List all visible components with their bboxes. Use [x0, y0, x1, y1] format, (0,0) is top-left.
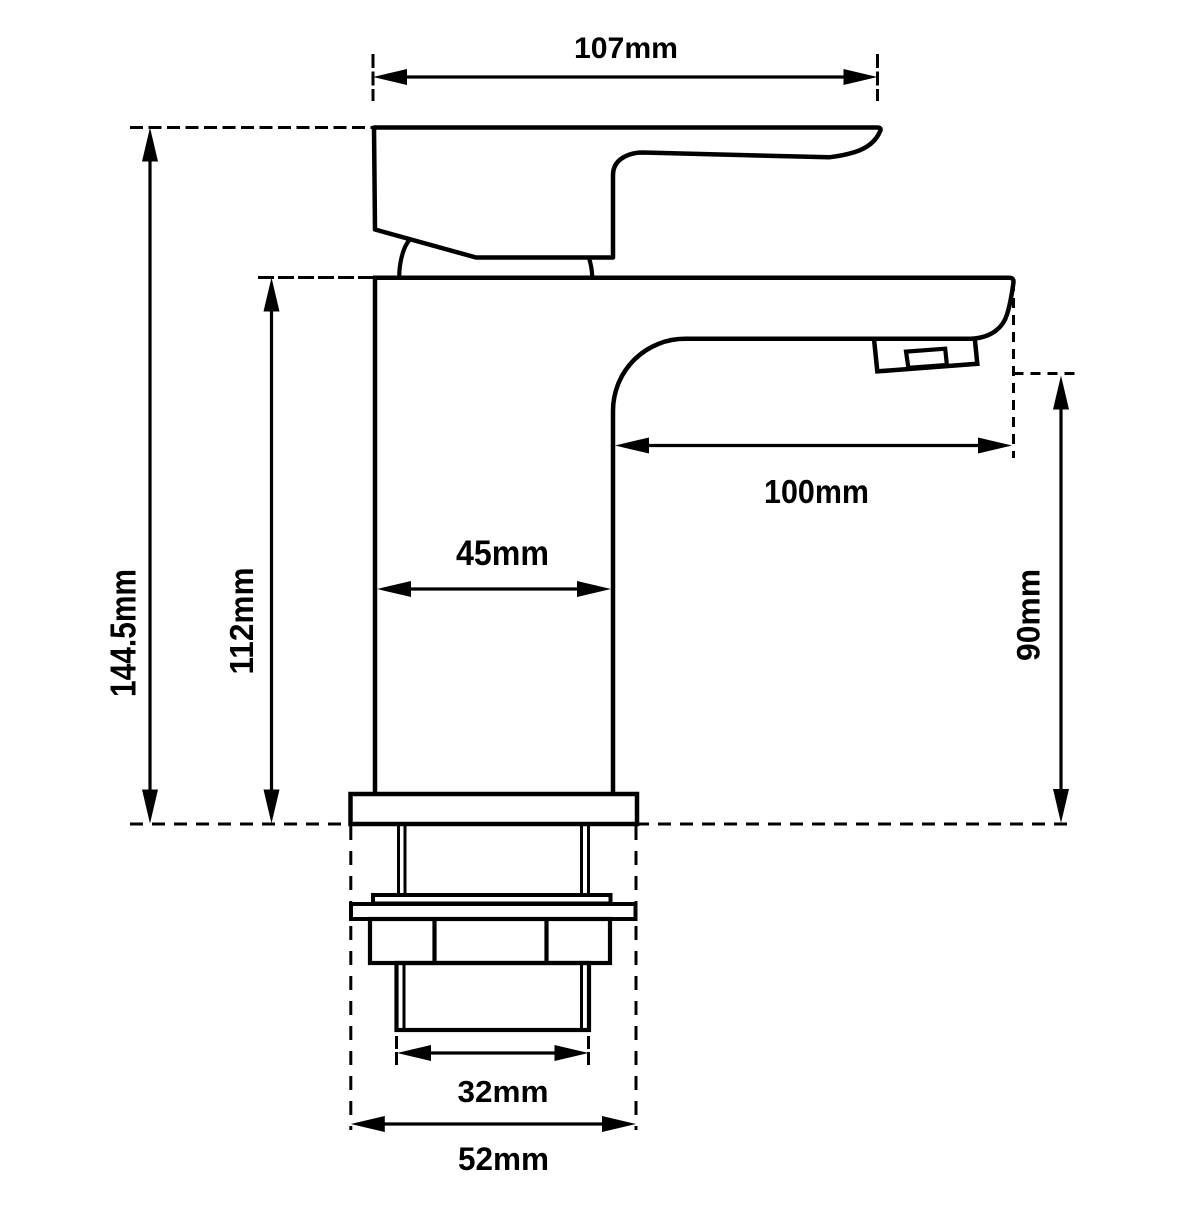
svg-text:144.5mm: 144.5mm — [103, 569, 144, 697]
svg-text:32mm: 32mm — [458, 1074, 549, 1109]
svg-text:52mm: 52mm — [458, 1141, 549, 1177]
svg-text:100mm: 100mm — [764, 473, 869, 510]
svg-text:45mm: 45mm — [456, 534, 549, 573]
svg-text:107mm: 107mm — [574, 32, 678, 65]
svg-text:90mm: 90mm — [1011, 569, 1047, 661]
svg-text:112mm: 112mm — [223, 568, 260, 675]
